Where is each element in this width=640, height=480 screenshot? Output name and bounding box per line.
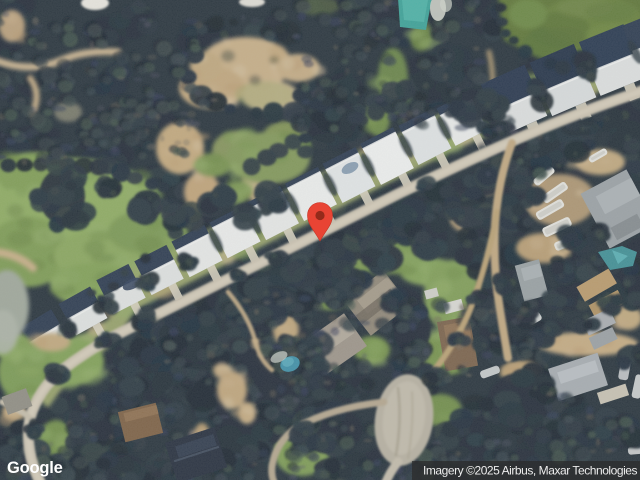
svg-text:Google: Google: [7, 459, 63, 477]
svg-text:Imagery ©2025 Airbus, Maxar Te: Imagery ©2025 Airbus, Maxar Technologies: [423, 464, 638, 478]
